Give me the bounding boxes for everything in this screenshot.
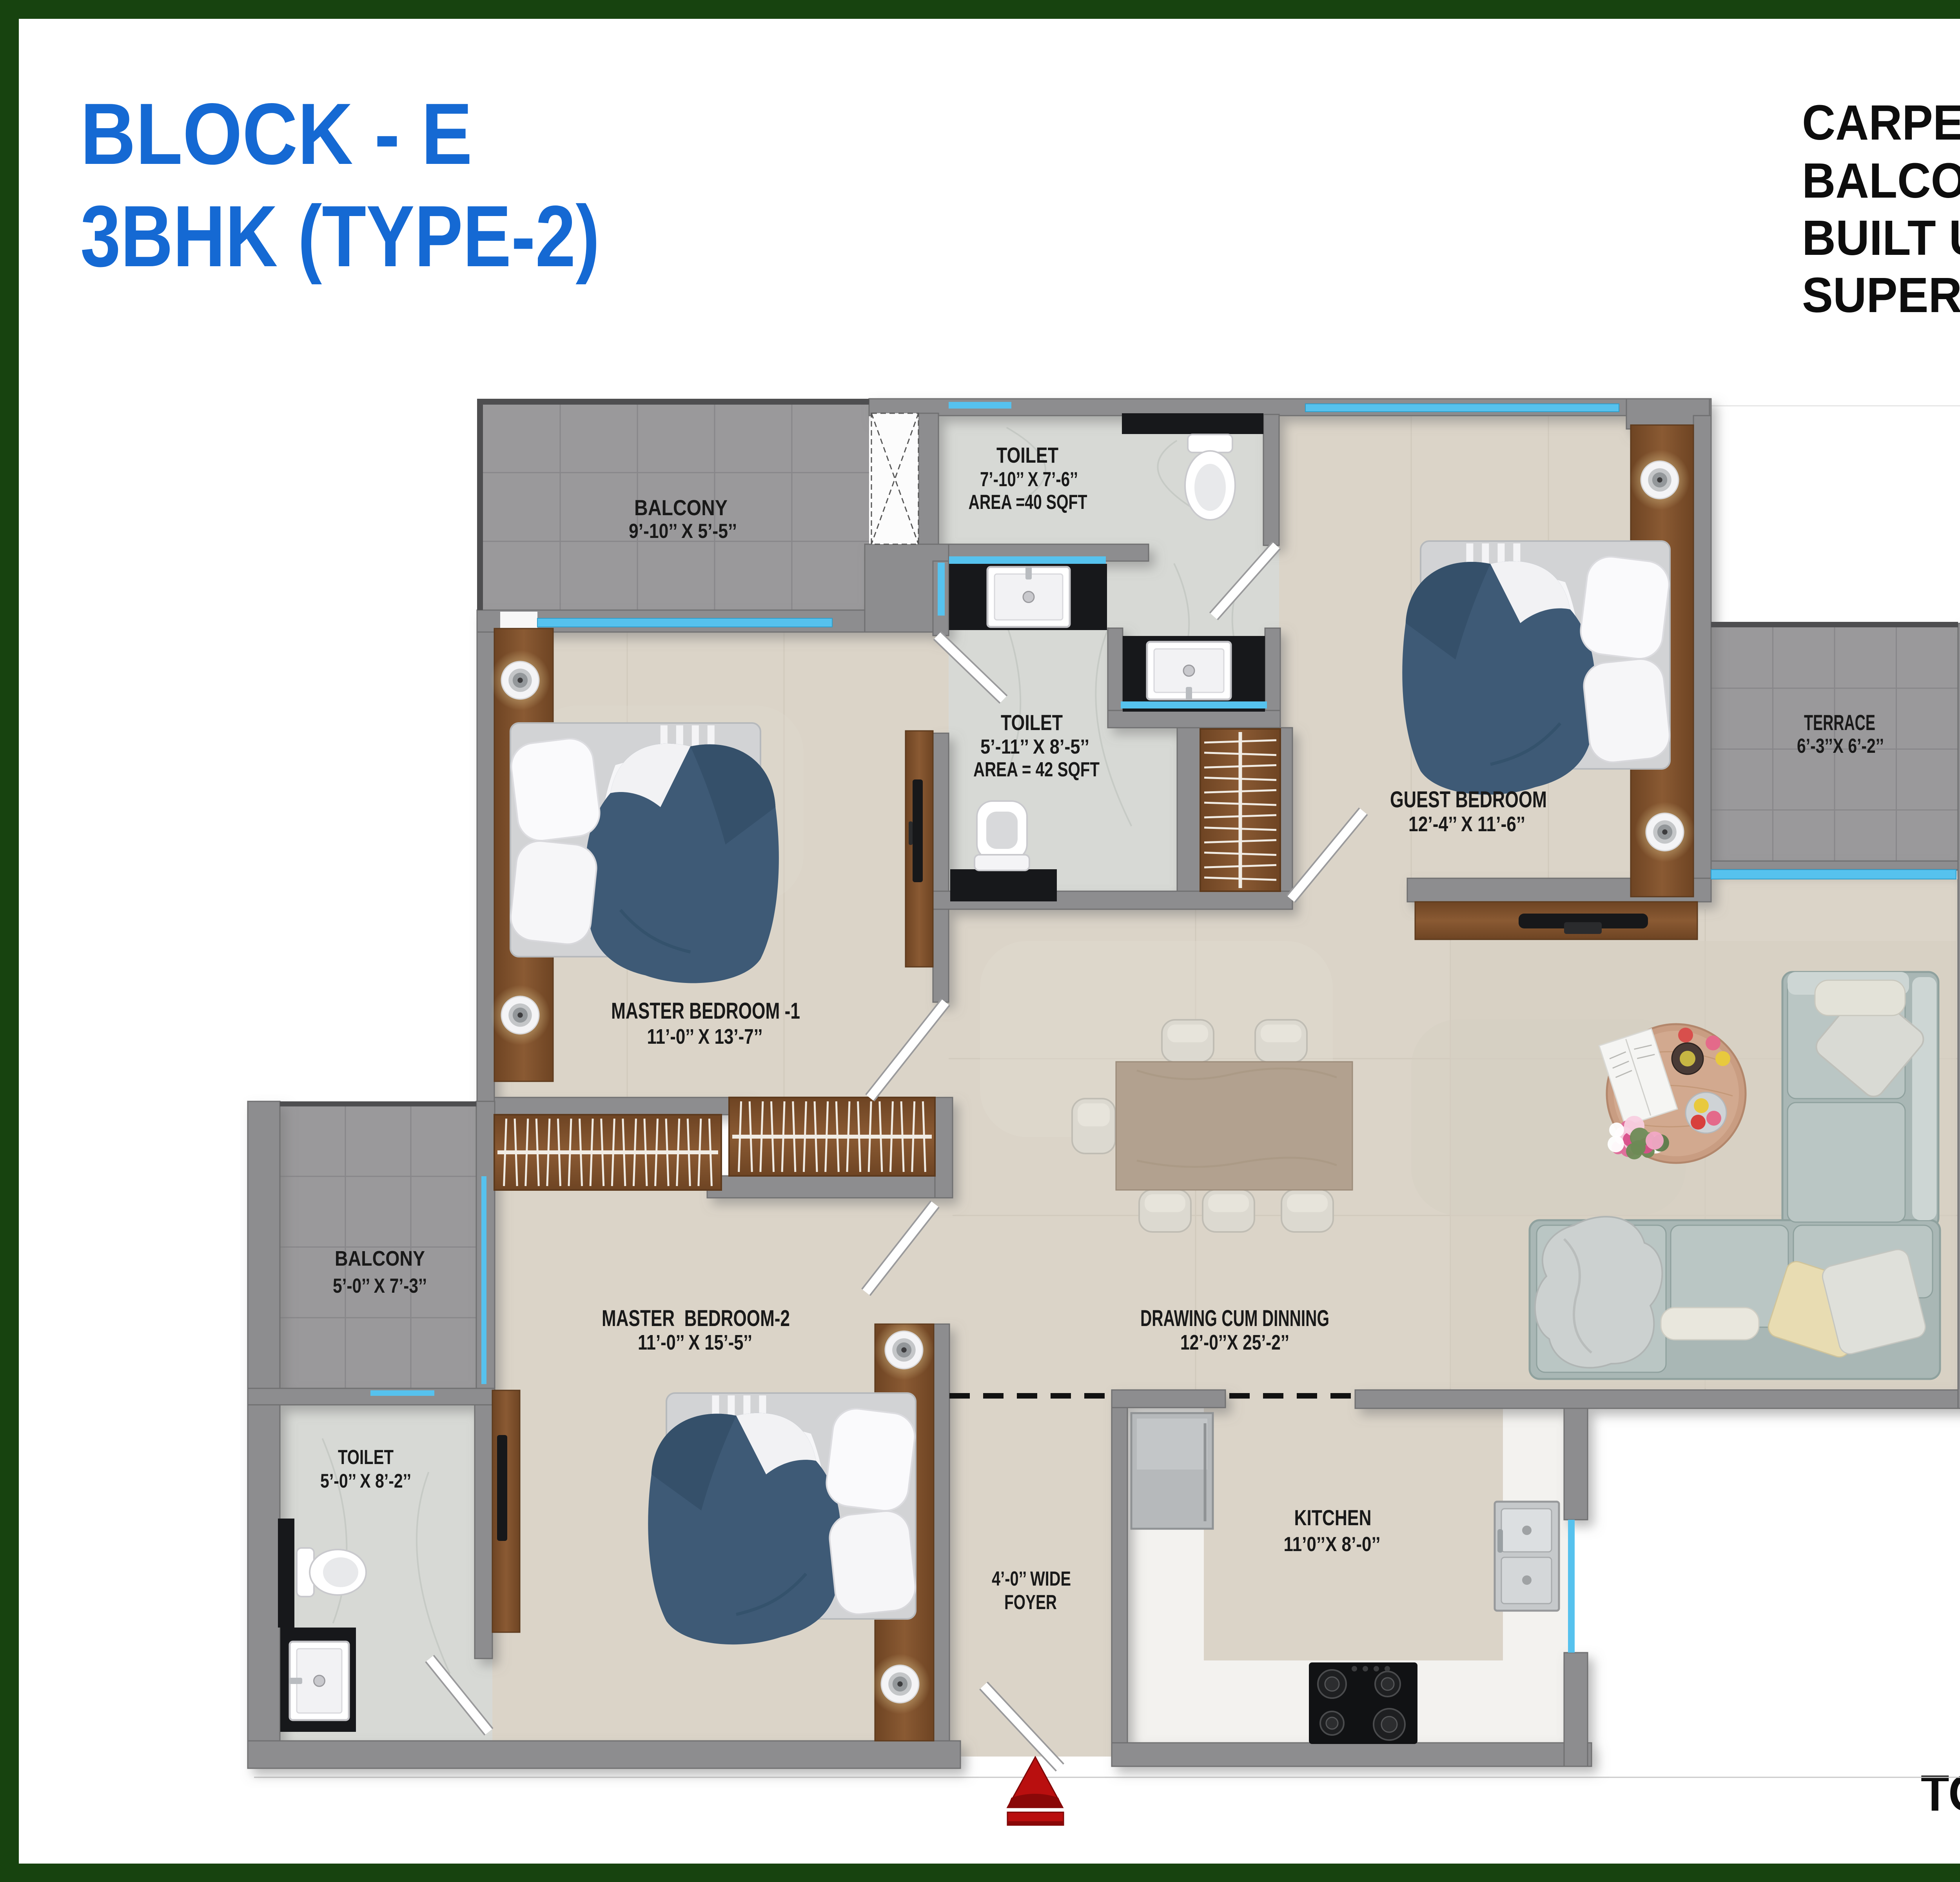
svg-text:SUPER BUILT UP = 1592 SQFT: SUPER BUILT UP = 1592 SQFT bbox=[1802, 267, 1960, 323]
svg-text:BUILT UP AREA = 1225 SQFT: BUILT UP AREA = 1225 SQFT bbox=[1802, 210, 1960, 265]
svg-text:TERRACE: TERRACE bbox=[1804, 710, 1875, 735]
svg-text:TOILET: TOILET bbox=[996, 443, 1058, 467]
svg-text:5’-0’’ X 7’-3’’: 5’-0’’ X 7’-3’’ bbox=[333, 1275, 427, 1297]
svg-text:9’-10’’ X 5’-5’’: 9’-10’’ X 5’-5’’ bbox=[629, 520, 737, 543]
svg-text:5’-11’’ X 8’-5’’: 5’-11’’ X 8’-5’’ bbox=[980, 736, 1089, 758]
svg-text:6’-3’’X 6’-2’’: 6’-3’’X 6’-2’’ bbox=[1797, 735, 1884, 758]
svg-text:12’-0’’X 25’-2’’: 12’-0’’X 25’-2’’ bbox=[1180, 1331, 1289, 1354]
svg-text:CARPET AREA = 1018 SQFT: CARPET AREA = 1018 SQFT bbox=[1802, 95, 1960, 150]
svg-text:AREA =40 SQFT: AREA =40 SQFT bbox=[969, 491, 1087, 514]
svg-text:KITCHEN: KITCHEN bbox=[1294, 1505, 1372, 1530]
svg-text:MASTER BEDROOM-2: MASTER BEDROOM-2 bbox=[602, 1306, 790, 1331]
svg-text:11’-0’’ X 13’-7’’: 11’-0’’ X 13’-7’’ bbox=[647, 1025, 763, 1048]
svg-text:MASTER BEDROOM -1: MASTER BEDROOM -1 bbox=[611, 998, 800, 1024]
svg-text:11’0’’X 8’-0’’: 11’0’’X 8’-0’’ bbox=[1284, 1533, 1381, 1556]
svg-text:4’-0’’ WIDE: 4’-0’’ WIDE bbox=[992, 1568, 1071, 1590]
svg-text:GUEST BEDROOM: GUEST BEDROOM bbox=[1390, 787, 1547, 812]
svg-text:FOYER: FOYER bbox=[1004, 1591, 1057, 1614]
svg-text:TOTAL NO. OF UNITS = 22: TOTAL NO. OF UNITS = 22 bbox=[1921, 1764, 1960, 1822]
svg-text:7’-10’’ X 7’-6’’: 7’-10’’ X 7’-6’’ bbox=[980, 468, 1078, 491]
svg-text:DRAWING CUM DINNING: DRAWING CUM DINNING bbox=[1140, 1306, 1329, 1331]
svg-text:BALCONY AREA = 130 SQFT: BALCONY AREA = 130 SQFT bbox=[1802, 153, 1960, 208]
svg-text:5’-0’’ X 8’-2’’: 5’-0’’ X 8’-2’’ bbox=[320, 1470, 411, 1492]
svg-text:AREA = 42 SQFT: AREA = 42 SQFT bbox=[973, 758, 1100, 781]
svg-text:TOILET: TOILET bbox=[1001, 710, 1063, 735]
svg-text:BALCONY: BALCONY bbox=[634, 495, 728, 520]
svg-text:TOILET: TOILET bbox=[338, 1446, 394, 1469]
svg-text:3BHK (TYPE-2): 3BHK (TYPE-2) bbox=[80, 188, 600, 285]
svg-text:12’-4’’ X 11’-6’’: 12’-4’’ X 11’-6’’ bbox=[1408, 812, 1525, 836]
svg-text:BALCONY: BALCONY bbox=[335, 1247, 425, 1270]
svg-text:BLOCK - E: BLOCK - E bbox=[80, 85, 472, 183]
svg-text:11’-0’’ X 15’-5’’: 11’-0’’ X 15’-5’’ bbox=[638, 1331, 752, 1354]
